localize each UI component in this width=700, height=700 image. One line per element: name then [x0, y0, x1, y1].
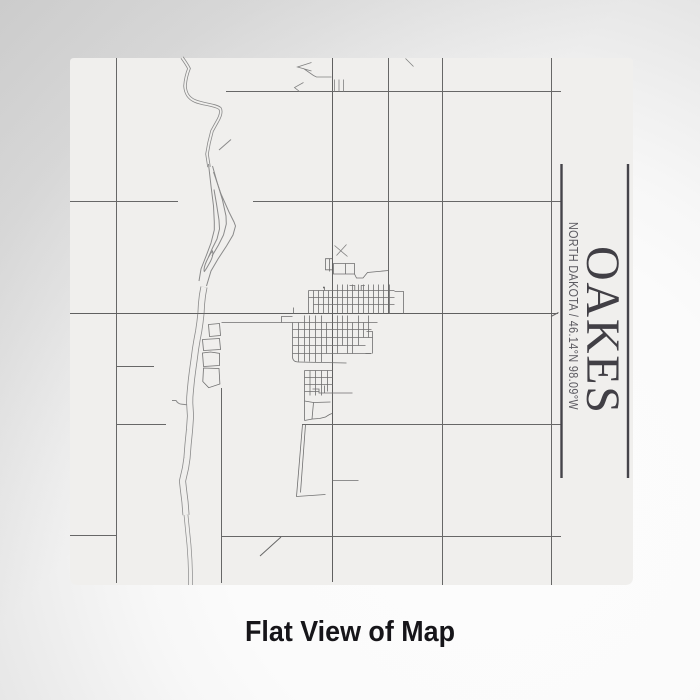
- svg-text:NORTH DAKOTA / 46.14°N 98.09°W: NORTH DAKOTA / 46.14°N 98.09°W: [566, 222, 580, 410]
- svg-text:OAKES: OAKES: [576, 246, 629, 413]
- svg-text:Flat View of Map: Flat View of Map: [245, 616, 455, 648]
